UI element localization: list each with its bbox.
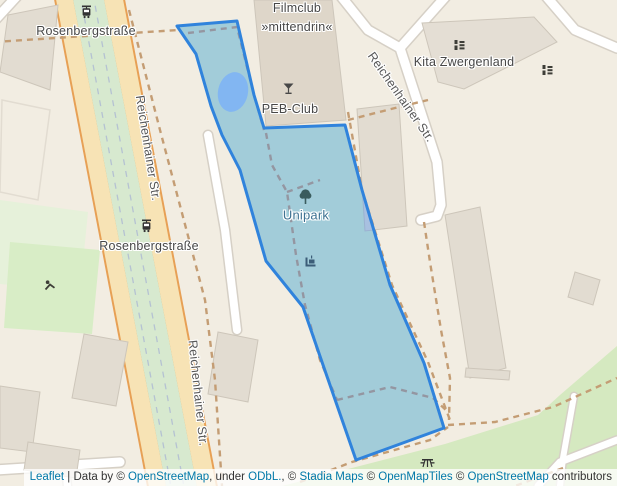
map-canvas[interactable]: Rosenbergstraße Rosenbergstraße Filmclub…: [0, 0, 617, 486]
kindergarten-icon: [541, 64, 554, 76]
park-label-unipark: Unipark: [283, 208, 329, 223]
kindergarten-icon: [453, 39, 466, 51]
picnic-table-icon: [420, 456, 435, 468]
tram-stop-icon: [80, 5, 93, 19]
poi-label-peb-club: PEB-Club: [262, 102, 318, 116]
poi-label-filmclub-line1: Filmclub: [261, 0, 332, 18]
map-tiles: [0, 0, 617, 486]
street-label-rosenbergstrasse-mid: Rosenbergstraße: [99, 239, 199, 253]
attribution-text: , ©: [281, 471, 299, 483]
attribution-link-odbl[interactable]: ODbL.: [248, 471, 281, 483]
attribution-link-openstreetmap-2[interactable]: OpenStreetMap: [468, 471, 549, 483]
poi-label-filmclub-line2: »mittendrin«: [261, 18, 332, 37]
attribution-link-openmaptiles[interactable]: OpenMapTiles: [378, 471, 452, 483]
playground-icon: [44, 279, 56, 291]
attribution-link-stadia-maps[interactable]: Stadia Maps: [299, 471, 363, 483]
attribution-link-leaflet[interactable]: Leaflet: [30, 471, 65, 483]
attribution-text: , under: [209, 471, 248, 483]
cocktail-bar-icon: [282, 82, 295, 95]
tram-stop-icon: [140, 219, 153, 233]
street-label-rosenbergstrasse-top: Rosenbergstraße: [36, 24, 136, 38]
attribution-text: | Data by ©: [64, 471, 128, 483]
poi-label-filmclub: Filmclub »mittendrin«: [261, 0, 332, 37]
attribution-text: contributors: [549, 471, 612, 483]
attribution-text: ©: [363, 471, 378, 483]
tree-icon: [298, 189, 313, 205]
attribution-link-openstreetmap[interactable]: OpenStreetMap: [128, 471, 209, 483]
memorial-icon: [303, 254, 317, 268]
attribution-text: ©: [453, 471, 468, 483]
poi-label-kita-zwergenland: Kita Zwergenland: [414, 55, 514, 69]
attribution-bar: Leaflet | Data by © OpenStreetMap, under…: [24, 469, 617, 486]
